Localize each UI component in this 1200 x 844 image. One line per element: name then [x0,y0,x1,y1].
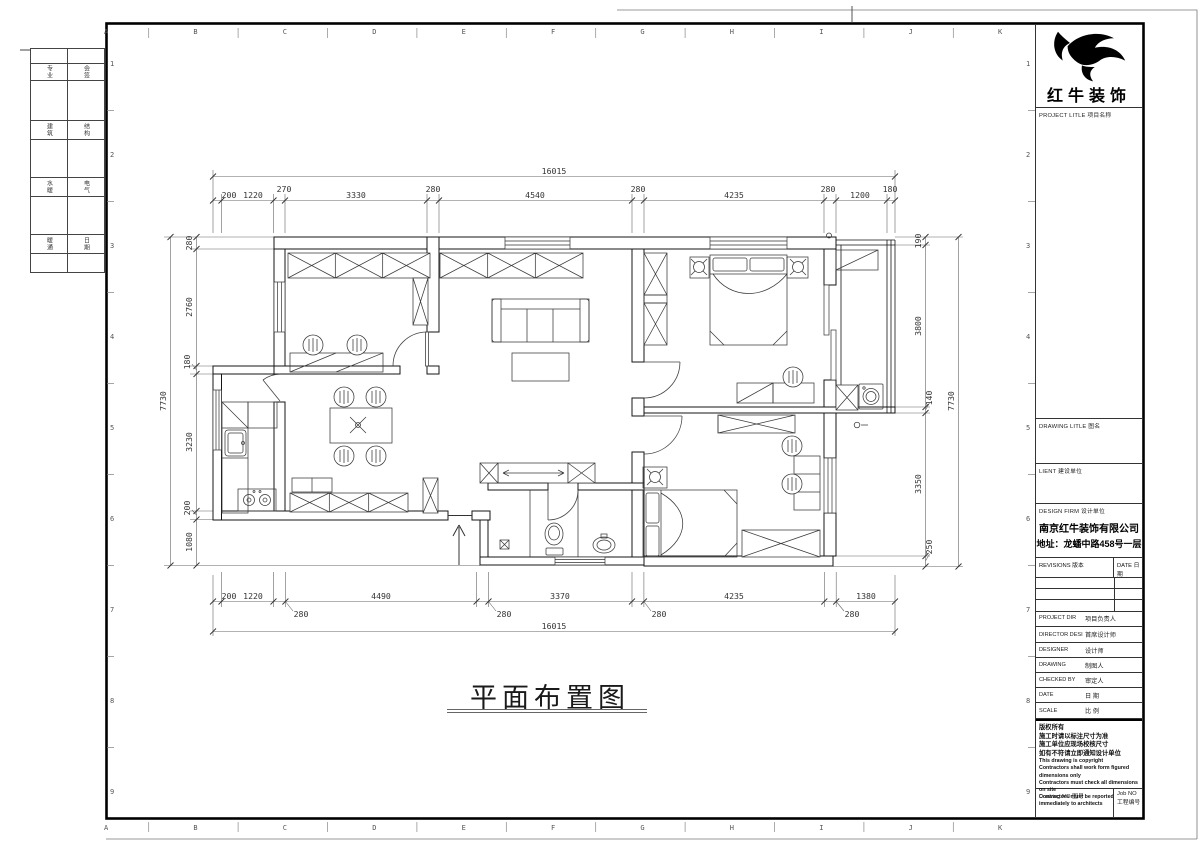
fold-strip-cell: 电气 [67,178,104,196]
svg-text:1380: 1380 [856,591,876,601]
fold-strip-cell [67,140,104,177]
fold-strip-cell: 结构 [67,121,104,139]
svg-text:3330: 3330 [346,190,366,200]
svg-text:140: 140 [924,391,934,406]
window-bedroom2-right [824,458,836,513]
master-bed [710,255,787,345]
door-bathroom [548,490,578,520]
cabinet-x-box [413,278,428,325]
svg-text:180: 180 [182,355,192,370]
svg-text:4235: 4235 [724,190,744,200]
walls [213,237,895,566]
fold-strip-row [31,49,104,63]
signoff-row-cn: 设计师 [1085,646,1104,655]
fold-strip-cell: 暖通 [31,235,67,253]
balcony-cabinet [836,250,878,270]
copyright-line: 如有不符请立即通知设计单位 [1039,750,1139,759]
svg-text:7730: 7730 [158,391,168,411]
svg-text:3800: 3800 [913,316,923,336]
svg-text:4540: 4540 [525,190,545,200]
cabinet-x-box [742,530,820,557]
svg-text:2760: 2760 [184,297,194,317]
door-bedroom2 [644,416,682,454]
svg-text:280: 280 [497,609,512,619]
dining-sideboard [292,478,332,492]
svg-text:3350: 3350 [913,474,923,494]
shower-drain [500,540,509,549]
svg-text:180: 180 [883,184,898,194]
drawing-title-label: DRAWING LITLE 图名 [1036,419,1142,430]
revisions-section: REVISIONS 版本 DATE 日期 [1036,558,1142,610]
fold-strip-cell [31,49,67,63]
signoff-row-cn: 首席设计师 [1085,630,1116,639]
revisions-header: REVISIONS 版本 DATE 日期 [1036,558,1142,578]
copyright-line: 施工时请以标注尺寸为准 [1039,733,1139,742]
fold-strip-row: 暖通日期 [31,234,104,253]
client-section: LIENT 建设单位 [1036,464,1142,504]
sofa [492,299,589,342]
svg-text:280: 280 [845,609,860,619]
svg-text:1080: 1080 [184,532,194,552]
client-label: LIENT 建设单位 [1036,464,1142,475]
design-firm-section: DESIGN FIRM 设计单位 南京红牛装饰有限公司 地址：龙蟠中路458号一… [1036,504,1142,558]
signoff-row-en: DATE [1036,692,1085,698]
svg-text:4235: 4235 [724,591,744,601]
fold-strip-row: 水暖电气 [31,177,104,196]
signoff-row-cn: 日 期 [1085,691,1099,700]
window-kitchen-left [213,390,222,450]
signoff-row-cn: 项目负责人 [1085,614,1116,623]
signature-strip: 专业会签建筑结构水暖电气暖通日期 [30,48,105,273]
signoff-row-cn: 比 例 [1085,706,1099,715]
fold-strip-cell [67,49,104,63]
fold-strip-row [31,196,104,234]
copyright-line: 施工单位应现场校核尺寸 [1039,741,1139,750]
fold-strip-cell [67,197,104,234]
window-living-top [505,237,570,249]
svg-text:280: 280 [184,236,194,251]
door-study [393,332,429,366]
fold-strip-row [31,253,104,272]
svg-text:7730: 7730 [946,391,956,411]
floor-plan-drawing: 16015 200 1220 270 3330 280 4540 280 423… [0,0,1200,844]
signoff-row-en: DRAWING [1036,662,1085,668]
svg-text:280: 280 [426,184,441,194]
title-underline [447,709,647,710]
fold-strip-cell: 建筑 [31,121,67,139]
dining-table [330,408,392,443]
svg-text:280: 280 [631,184,646,194]
window-bath-bottom [555,557,605,565]
window-master-top [710,237,787,249]
cabinet-x-box [440,253,583,278]
svg-text:1200: 1200 [850,190,870,200]
cabinet-x-box [480,463,498,483]
cabinet-x-box [836,385,858,410]
signoff-row-en: CHECKED BY [1036,677,1085,683]
svg-text:16015: 16015 [542,621,567,631]
fold-strip-cell [31,254,67,272]
svg-text:4490: 4490 [371,591,391,601]
fold-strip-row: 专业会签 [31,63,104,80]
date-col-label: DATE 日期 [1114,558,1142,577]
fold-strip-cell: 会签 [67,64,104,80]
svg-text:250: 250 [924,540,934,555]
cabinet-x-box [423,478,438,513]
title-block: 红牛装饰 PROJECT LITLE 项目名称 DRAWING LITLE 图名… [1035,24,1142,818]
fold-strip-row [31,80,104,120]
svg-text:280: 280 [294,609,309,619]
washing-machine [859,384,883,409]
entry-arrow [448,516,472,566]
job-no-label: Job NO 工程编号 [1114,789,1142,818]
signoff-row: DESIGNER设计师 [1036,643,1142,658]
cabinet-x-box [644,303,667,345]
revision-row [1036,589,1142,600]
fold-strip-cell: 专业 [31,64,67,80]
svg-text:270: 270 [277,184,292,194]
firm-name: 南京红牛装饰有限公司 [1036,520,1142,535]
copyright-line: 版权所有 [1039,724,1139,733]
bathroom-partitions [530,490,578,557]
design-firm-label: DESIGN FIRM 设计单位 [1036,504,1142,515]
window-study-left [274,282,285,332]
numbers-section: Drawing NO 图号 Job NO 工程编号 [1036,789,1142,818]
signoff-row-en: SCALE [1036,708,1085,714]
fold-strip-row: 建筑结构 [31,120,104,139]
svg-text:190: 190 [913,234,923,249]
copyright-line: Contractors shall work form figured dime… [1039,765,1139,779]
signoff-row: DRAWING制图人 [1036,658,1142,673]
kitchen-sink [225,430,246,456]
signoff-row-en: PROJECT DIR [1036,615,1085,621]
signoff-row-cn: 审定人 [1085,676,1104,685]
signoff-row: PROJECT DIR项目负责人 [1036,610,1142,627]
fold-strip-cell [67,81,104,120]
hall-closet [498,463,568,483]
fold-strip-cell [67,254,104,272]
cabinet-x-box [288,253,430,278]
fold-strip-cell [31,197,67,234]
project-title-label: PROJECT LITLE 项目名称 [1036,108,1142,119]
drawing-title-section: DRAWING LITLE 图名 [1036,419,1142,464]
signoff-row: DATE日 期 [1036,688,1142,703]
signoff-row-en: DESIGNER [1036,647,1085,653]
svg-text:3370: 3370 [550,591,570,601]
fold-strip-cell [31,81,67,120]
brand-name: 红牛装饰 [1036,82,1142,106]
project-title-section: PROJECT LITLE 项目名称 [1036,108,1142,419]
signoff-rows: PROJECT DIR项目负责人DIRECTOR DESI首席设计师DESIGN… [1036,610,1142,719]
rednbull-logo-icon [1042,27,1138,83]
svg-text:280: 280 [821,184,836,194]
svg-text:200: 200 [182,501,192,516]
title-underline [447,712,647,713]
svg-text:200: 200 [222,591,237,601]
revision-row [1036,578,1142,589]
logo-section: 红牛装饰 [1036,24,1142,108]
svg-text:16015: 16015 [542,166,567,176]
cabinet-x-box [644,253,667,295]
seats-and-lamps [303,259,806,494]
firm-address: 地址：龙蟠中路458号一层 [1036,537,1142,550]
sliding-balcony-door [824,285,836,380]
fold-strip-row [31,139,104,177]
drawing-no-label: Drawing NO 图号 [1036,789,1114,818]
door-master-bedroom [644,362,680,398]
svg-text:1220: 1220 [243,591,263,601]
fold-strip-cell: 日期 [67,235,104,253]
door-kitchen [263,374,280,401]
cabinet-x-box [718,415,795,433]
signoff-row: SCALE比 例 [1036,703,1142,719]
master-dresser [737,383,814,403]
signoff-row: CHECKED BY审定人 [1036,673,1142,688]
bedroom2-bed [643,490,737,557]
svg-text:1220: 1220 [243,190,263,200]
signoff-row-en: DIRECTOR DESI [1036,632,1085,638]
signoff-row-cn: 制图人 [1085,661,1104,670]
svg-text:200: 200 [222,190,237,200]
svg-text:3230: 3230 [184,432,194,452]
signoff-row: DIRECTOR DESI首席设计师 [1036,627,1142,643]
coffee-table [512,353,569,381]
copyright-section: 版权所有施工时请以标注尺寸为准施工单位应现场校核尺寸如有不符请立即通知设计单位 … [1036,719,1142,789]
washbasin [593,534,615,553]
fold-strip-cell [31,140,67,177]
copyright-cn: 版权所有施工时请以标注尺寸为准施工单位应现场校核尺寸如有不符请立即通知设计单位 [1039,724,1139,758]
svg-text:280: 280 [652,609,667,619]
stove [238,489,276,511]
cabinet-x-box [290,493,408,512]
drawing-sheet: 16015 200 1220 270 3330 280 4540 280 423… [0,0,1200,844]
toilet [545,523,563,555]
fold-strip-cell: 水暖 [31,178,67,196]
revisions-label: REVISIONS 版本 [1036,558,1114,577]
copyright-line: This drawing is copyright [1039,758,1139,765]
cabinet-x-box [568,463,595,483]
